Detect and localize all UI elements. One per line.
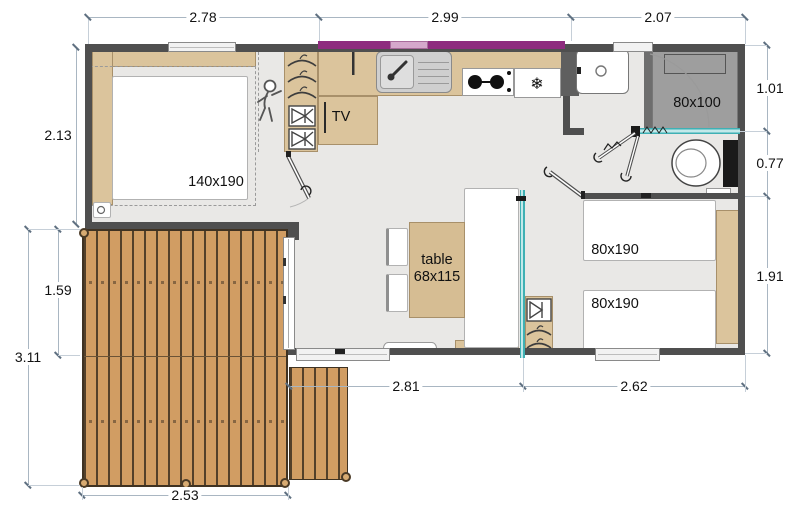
dim-conn [745,196,767,197]
shelf-icons-master [289,106,315,149]
dim-right-3: 1.91 [753,268,786,284]
dim-top-1: 2.78 [186,9,219,25]
dim-conn [88,17,89,44]
dim-bottom-2: 2.62 [617,378,650,394]
dim-top-2: 2.99 [428,9,461,25]
dim-conn [58,355,80,356]
nightstand-knob [98,207,105,214]
dim-conn [28,485,80,486]
floor-plan-canvas: 140x190 ❄ TV 80x100 80x190 80x190 table … [0,0,800,513]
dim-conn [319,17,320,41]
hanger-icons-master [288,55,316,98]
dim-conn [28,229,80,230]
dim-conn [745,17,746,44]
dim-left-3: 3.11 [12,349,44,365]
dim-conn [740,131,767,132]
dim-line-bottom-1 [289,386,745,387]
counter-divider [352,52,355,75]
dim-top-3: 2.07 [641,9,674,25]
dim-conn [745,355,746,392]
dim-line-left-1 [76,47,77,224]
burner-icons [468,71,511,92]
shelf-icon-twin [527,299,551,321]
faucet-icon [388,62,407,81]
child-icon [258,81,281,122]
door-hallway-a [594,133,635,162]
dim-conn [523,358,524,392]
door-master-bedroom [286,151,311,207]
dim-right-1: 1.01 [753,80,786,96]
dim-conn [745,353,767,354]
dim-left-1: 2.13 [41,127,74,143]
wall-vent [335,349,345,354]
dim-conn [745,45,767,46]
door-twin-bedroom [544,167,651,199]
dim-conn [288,487,289,500]
washbasin-detail [577,66,606,76]
door-bathroom-arc [650,54,709,127]
dim-right-2: 0.77 [753,155,786,171]
dim-conn [82,487,83,500]
dim-conn [571,17,572,41]
hanger-icons-twin [527,326,551,348]
dim-bottom-3: 2.53 [168,487,201,503]
dim-bottom-1: 2.81 [389,378,422,394]
door-seal-zigzag [643,127,667,133]
dim-left-2: 1.59 [41,282,74,298]
toilet [672,140,720,186]
detail-overlay [0,0,800,513]
